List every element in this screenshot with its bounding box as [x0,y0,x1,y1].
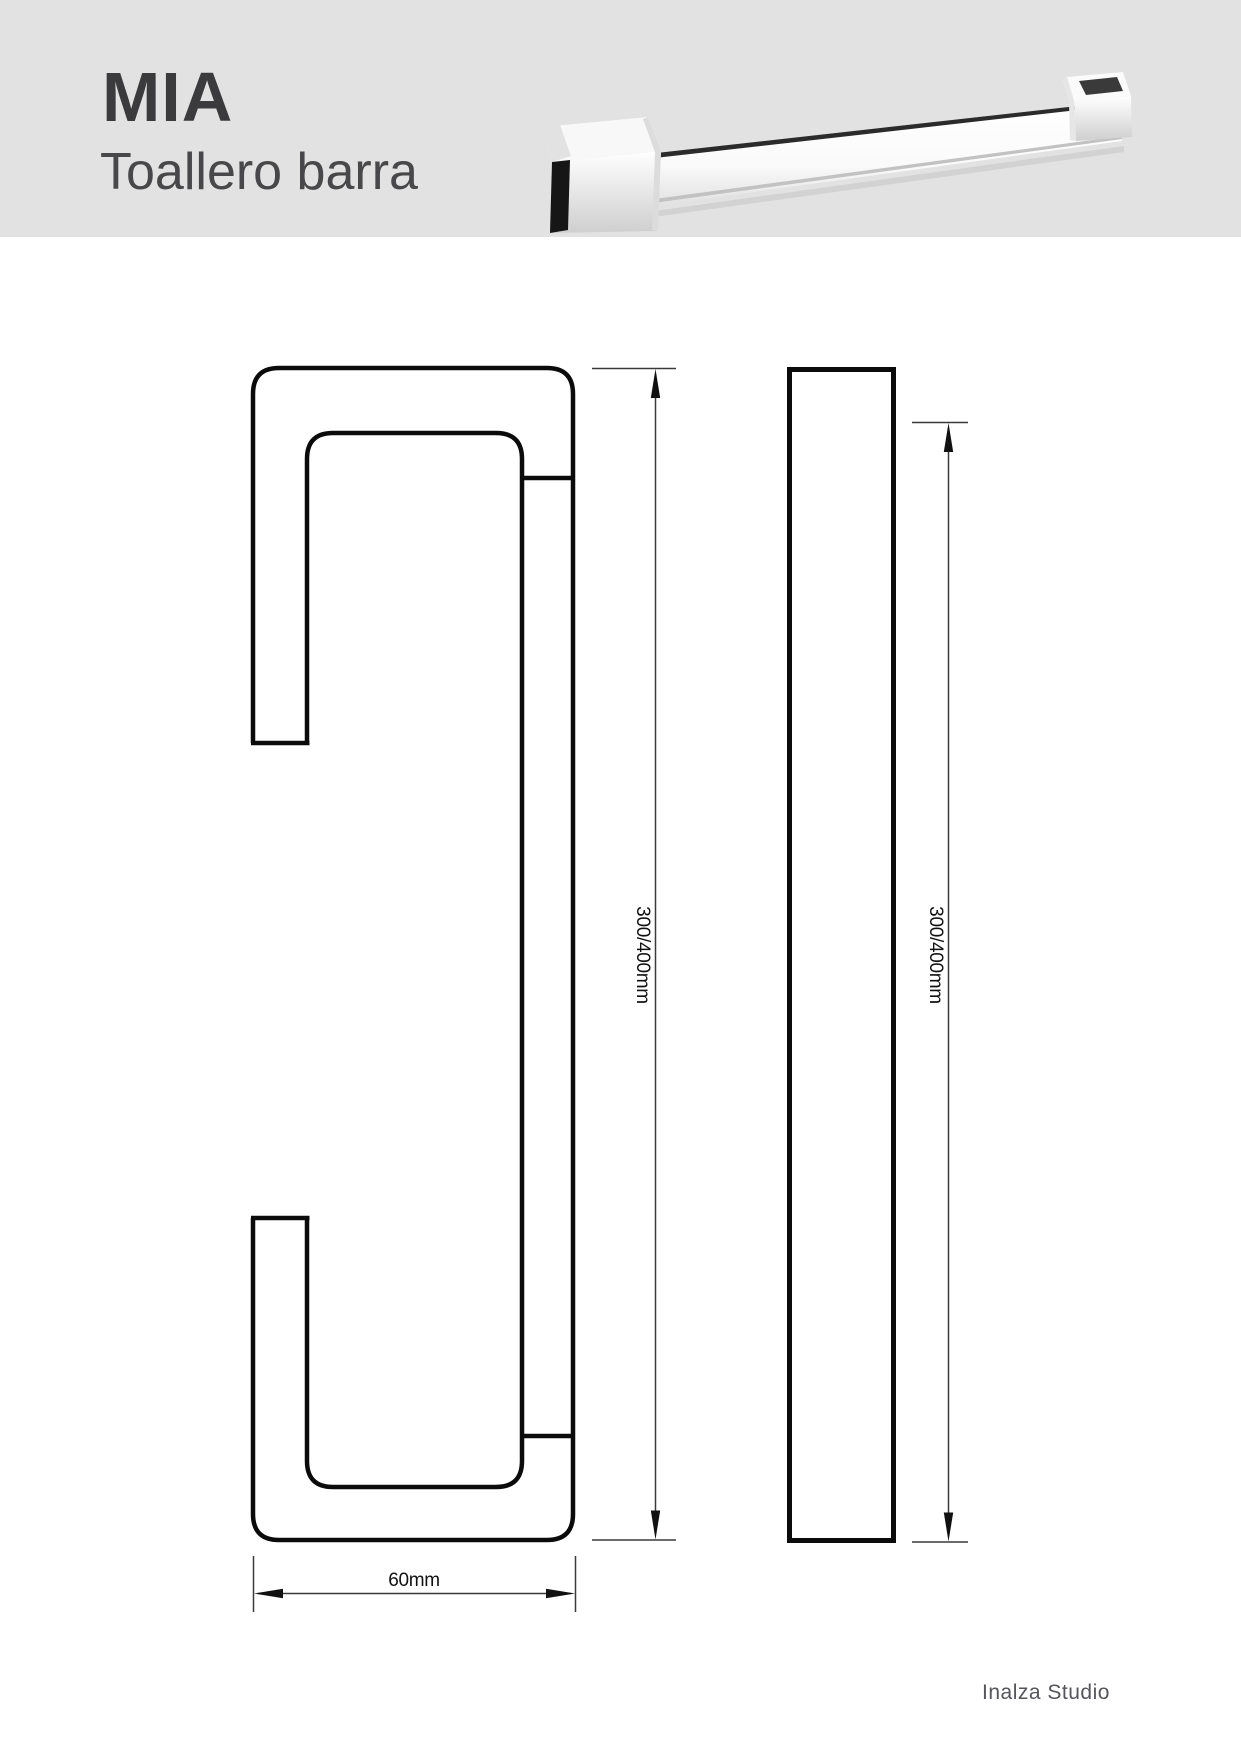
technical-drawing-canvas: 300/400mm 60mm 300/400m [0,0,1241,1755]
side-height-label: 300/400mm [632,906,653,1004]
towel-bar-right-mount [1062,72,1132,141]
side-view-drawing [251,368,573,1540]
studio-credit: Inalza Studio [982,1681,1110,1705]
front-height-label: 300/400mm [925,906,946,1004]
towel-bar-left-mount [543,117,661,233]
front-view-drawing [790,370,894,1541]
width-dimension: 60mm [254,1556,576,1612]
width-label: 60mm [388,1570,440,1591]
towel-bar-photo [543,72,1132,233]
height-dimension-side: 300/400mm [592,369,676,1541]
spec-sheet-page: MIA Toallero barra [0,0,1241,1755]
height-dimension-front: 300/400mm [912,423,968,1543]
